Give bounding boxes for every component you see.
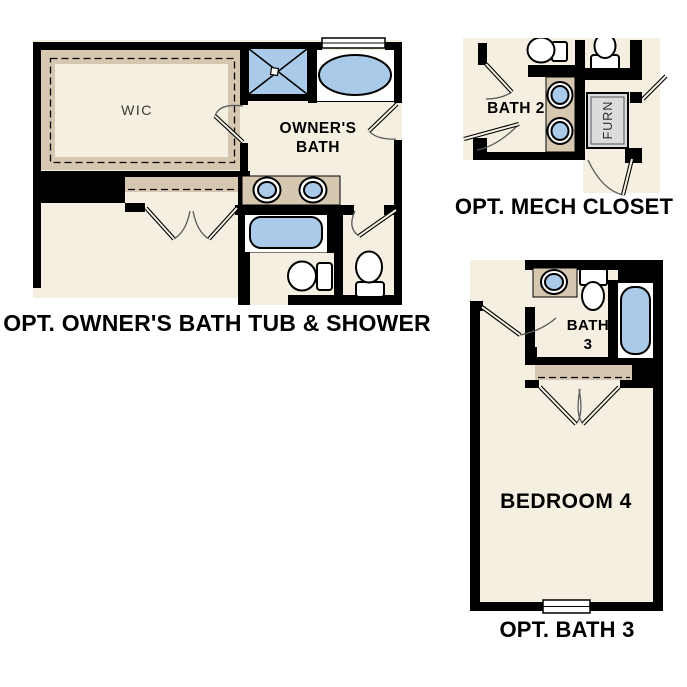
bedroom-closet (535, 365, 632, 380)
window (322, 38, 385, 48)
plan-bath3: BATH 3 BEDROOM 4 OPT. BATH 3 (470, 260, 663, 642)
furn-label: FURN (601, 101, 615, 140)
toilet (288, 262, 332, 291)
shower (248, 48, 308, 95)
garden-tub (317, 50, 394, 101)
vanity (546, 77, 575, 152)
hall-closet (125, 171, 238, 192)
plan-owners-bath: WIC OWNER'S BATH OPT. OWNER'S BATH TUB &… (3, 38, 431, 336)
plan3-title: OPT. BATH 3 (499, 617, 634, 642)
owners-bath-label-line1: OWNER'S (280, 120, 357, 137)
bedroom4-label: BEDROOM 4 (500, 490, 632, 513)
toilet (528, 38, 568, 63)
toilet (580, 269, 607, 310)
bath2-label: BATH 2 (487, 100, 545, 117)
bath3-label-line1: BATH (567, 317, 610, 334)
bath-tub (245, 215, 327, 252)
wic-label: WIC (121, 102, 153, 118)
window (543, 600, 590, 613)
furnace: FURN (587, 93, 628, 148)
plan1-title: OPT. OWNER'S BATH TUB & SHOWER (3, 310, 431, 336)
owners-bath-label-line2: BATH (296, 139, 340, 156)
bath3-label-line2: 3 (584, 336, 593, 353)
vanity (533, 268, 577, 297)
plan2-title: OPT. MECH CLOSET (455, 194, 674, 219)
plan-mech-closet: FURN BATH 2 OPT. MECH CLOSET (455, 34, 674, 219)
bath-tub (618, 283, 653, 358)
double-vanity (242, 176, 340, 205)
toilet (356, 252, 384, 298)
floorplan-canvas: WIC OWNER'S BATH OPT. OWNER'S BATH TUB &… (0, 0, 687, 687)
shower-drain (271, 68, 279, 76)
